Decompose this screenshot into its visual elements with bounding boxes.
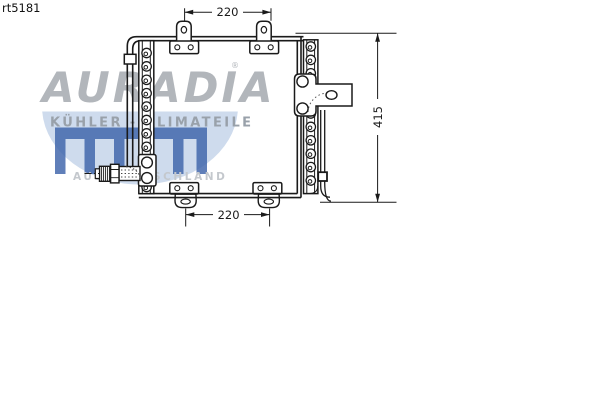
bottom-bracket-left — [170, 183, 199, 208]
registered-trademark-symbol: ® — [231, 61, 239, 70]
upper-right-bracket — [295, 74, 353, 116]
watermark-logo: AURADIA ® KÜHLER - KLIMATEILE AUS DEUTSC… — [39, 61, 276, 185]
condenser-technical-diagram: AURADIA ® KÜHLER - KLIMATEILE AUS DEUTSC… — [0, 0, 600, 400]
bottom-bracket-right — [253, 183, 282, 208]
pipe-fitting-block — [124, 54, 136, 64]
dimension-bottom-width: 220 — [186, 208, 270, 227]
part-number: rt5181 — [2, 1, 41, 15]
dimension-label-top-width: 220 — [217, 5, 239, 19]
dimension-label-height: 415 — [371, 106, 385, 128]
dimension-top-width: 220 — [185, 5, 271, 21]
catalog-diagram-page: AURADIA ® KÜHLER - KLIMATEILE AUS DEUTSC… — [0, 0, 600, 400]
brand-text: AURADIA — [39, 63, 276, 112]
dimension-label-bottom-width: 220 — [218, 208, 240, 222]
pipe-clamp — [318, 172, 327, 181]
